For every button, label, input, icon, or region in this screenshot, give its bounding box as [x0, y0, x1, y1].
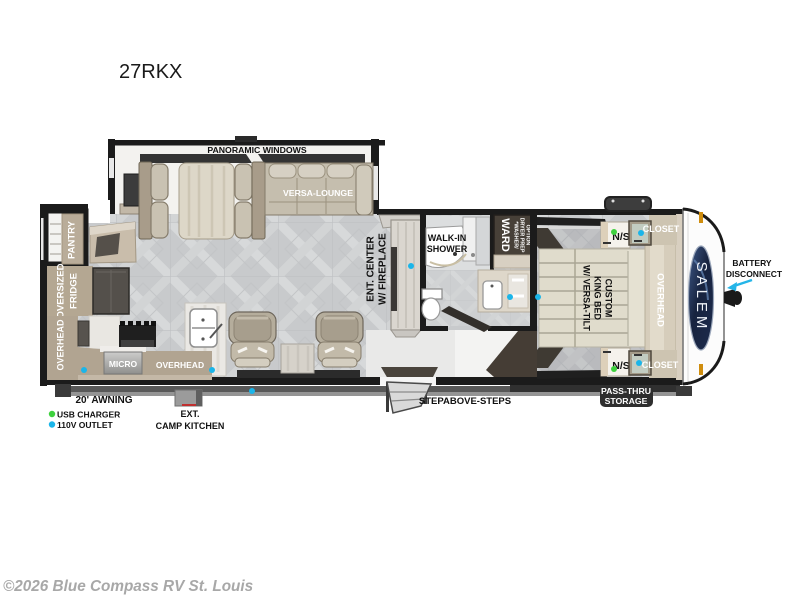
svg-text:PANORAMIC WINDOWS: PANORAMIC WINDOWS [207, 145, 306, 155]
svg-text:CUSTOM: CUSTOM [604, 279, 614, 318]
svg-text:PANTRY: PANTRY [67, 220, 78, 259]
svg-text:DRYER PREP: DRYER PREP [519, 218, 525, 253]
svg-text:STEPABOVE-STEPS: STEPABOVE-STEPS [419, 396, 511, 407]
svg-text:ENT. CENTER: ENT. CENTER [366, 235, 377, 301]
svg-text:OVERHEAD: OVERHEAD [55, 319, 65, 371]
svg-text:*WASHER/: *WASHER/ [513, 221, 519, 249]
svg-text:W/ VERSA-TILT: W/ VERSA-TILT [582, 265, 592, 331]
svg-text:CAMP KITCHEN: CAMP KITCHEN [156, 421, 225, 431]
svg-text:CLOSET: CLOSET [642, 360, 679, 370]
svg-text:W/ FIREPLACE: W/ FIREPLACE [378, 233, 389, 305]
svg-text:STORAGE: STORAGE [605, 396, 648, 406]
svg-text:110V OUTLET: 110V OUTLET [57, 420, 114, 430]
svg-text:WARD: WARD [499, 218, 511, 252]
svg-text:OVERHEAD: OVERHEAD [156, 360, 204, 370]
svg-text:CLOSET: CLOSET [643, 224, 680, 234]
svg-text:VERSA-LOUNGE: VERSA-LOUNGE [283, 188, 353, 198]
svg-text:27RKX: 27RKX [119, 61, 182, 83]
svg-text:OPTION: OPTION [525, 225, 531, 246]
svg-text:FRIDGE: FRIDGE [69, 273, 80, 309]
svg-text:MICRO: MICRO [109, 359, 138, 369]
svg-text:PASS-THRU: PASS-THRU [601, 386, 651, 396]
svg-text:BATTERY: BATTERY [732, 258, 772, 268]
svg-text:OVERSIZED: OVERSIZED [56, 263, 67, 318]
svg-text:SHOWER: SHOWER [427, 244, 468, 254]
svg-text:OVERHEAD: OVERHEAD [654, 273, 665, 327]
svg-text:SALEM: SALEM [693, 262, 710, 333]
svg-text:USB CHARGER: USB CHARGER [57, 410, 120, 420]
svg-text:20' AWNING: 20' AWNING [75, 395, 132, 406]
svg-text:KING BED: KING BED [593, 276, 603, 321]
svg-text:EXT.: EXT. [180, 409, 199, 419]
svg-text:©2026 Blue Compass RV St. Loui: ©2026 Blue Compass RV St. Louis [3, 578, 253, 595]
svg-text:WALK-IN: WALK-IN [428, 233, 467, 243]
svg-text:DISCONNECT: DISCONNECT [726, 269, 783, 279]
